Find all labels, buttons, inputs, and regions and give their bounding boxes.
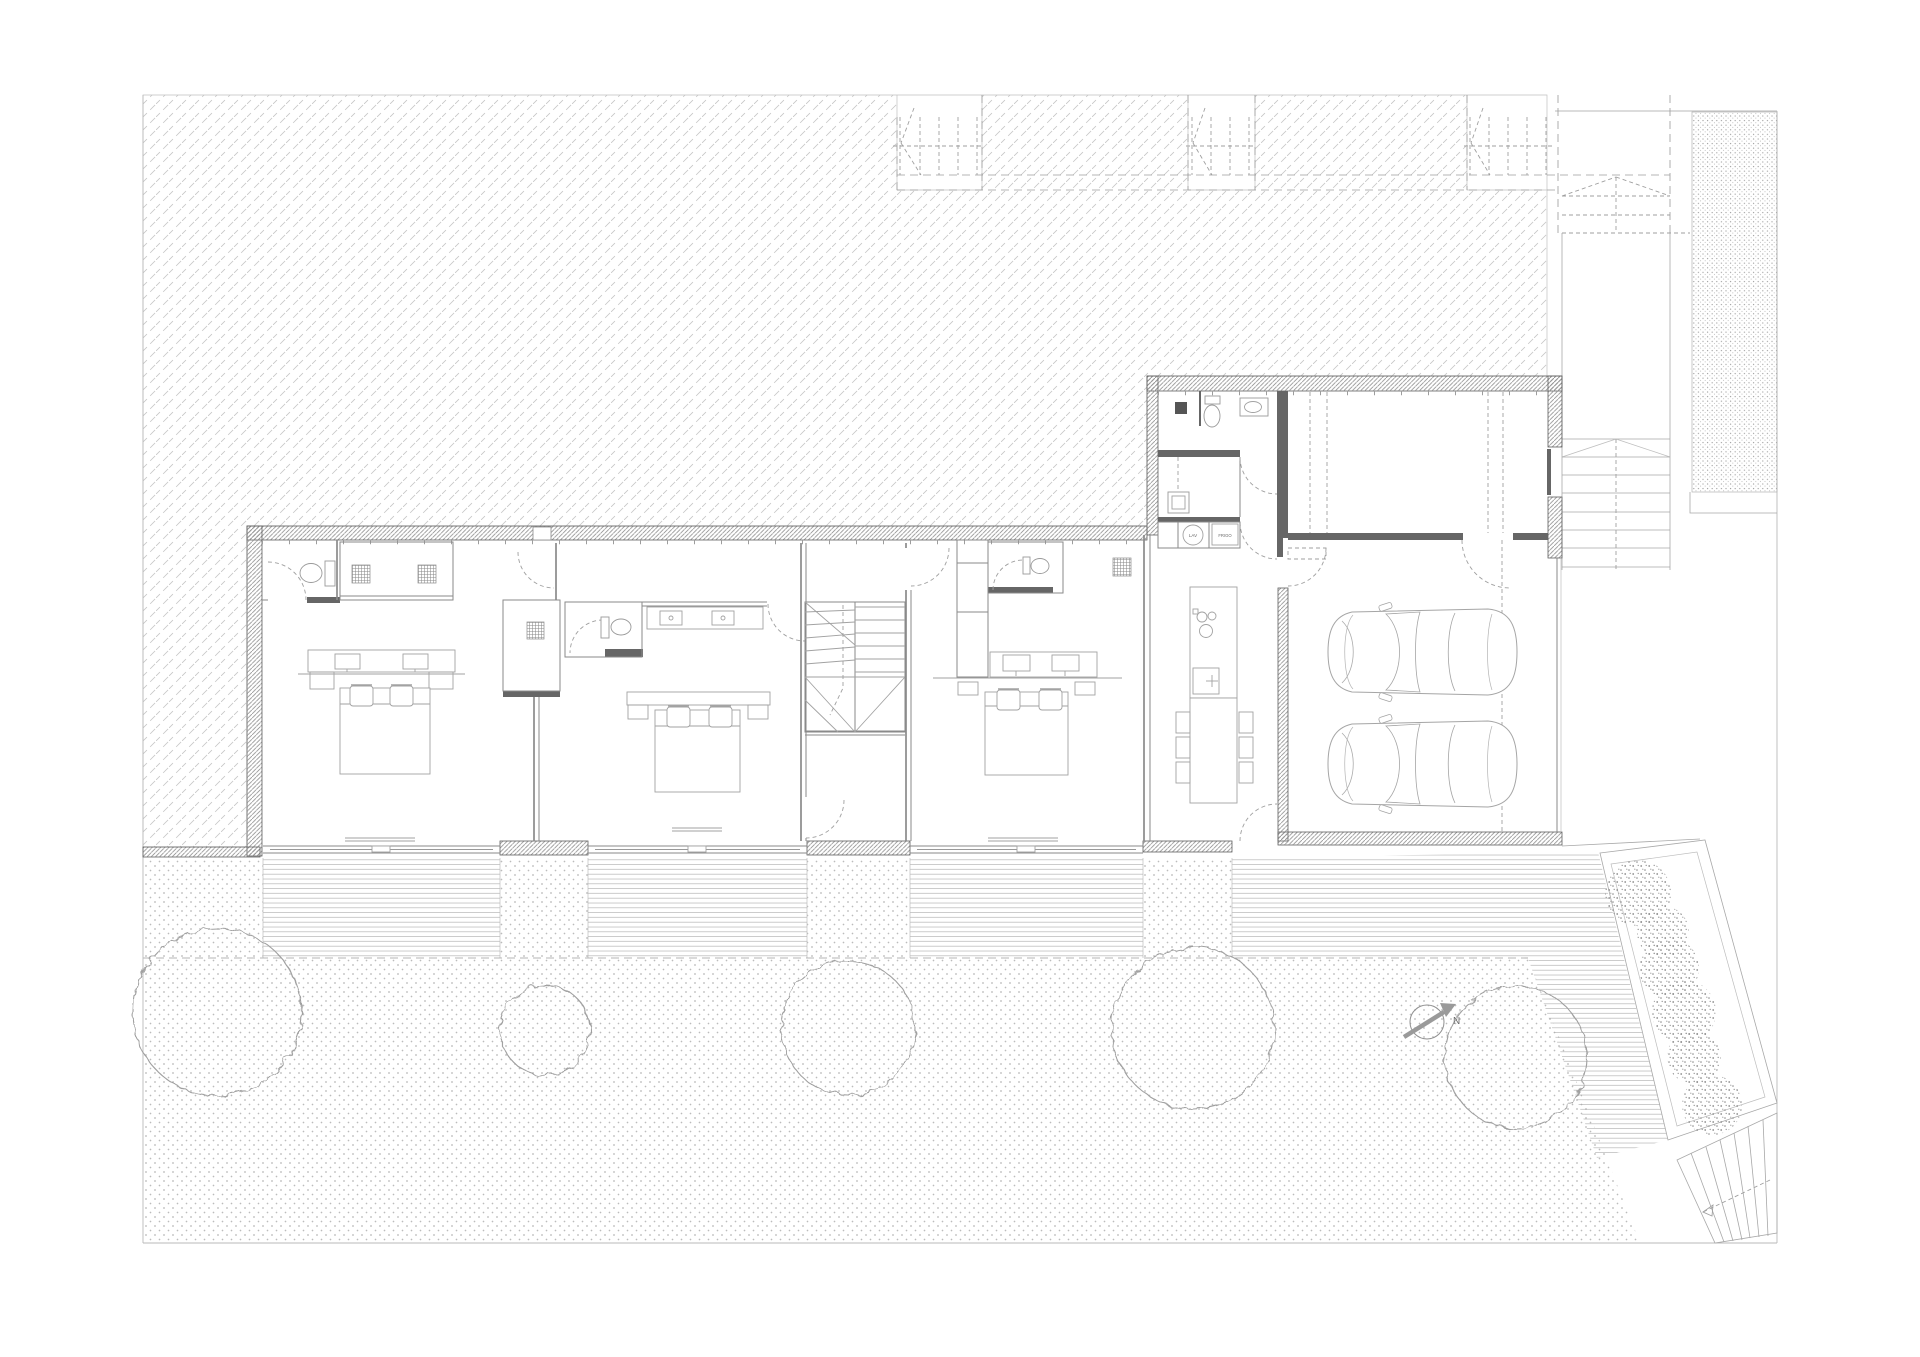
kitchen-dining xyxy=(1176,587,1253,803)
wall-west xyxy=(247,526,262,856)
door-swing-entry xyxy=(518,552,554,588)
door-swing-bed2 xyxy=(768,604,805,641)
garden-wall-west xyxy=(143,847,260,857)
planting-strip-east xyxy=(1692,112,1777,492)
door-swing-bath2 xyxy=(570,620,603,653)
door-swing-bath1 xyxy=(268,562,306,600)
wall-north-garage-wing xyxy=(1147,376,1562,391)
wall-garage-mid-a xyxy=(1288,533,1463,540)
floor-grille xyxy=(352,565,370,583)
laundry-fridge-alcove: LAV FRIGO xyxy=(1158,522,1240,548)
car-2 xyxy=(1328,714,1517,814)
bedroom-2-furniture xyxy=(627,692,770,792)
wall-utility-div1 xyxy=(1158,450,1240,457)
plan-sheet: N xyxy=(0,0,1920,1357)
bedroom-1-furniture xyxy=(298,650,465,774)
desk xyxy=(308,650,455,672)
main-stair xyxy=(805,602,905,732)
washer-label: LAV xyxy=(1189,533,1197,538)
rooflight-cluster-3 xyxy=(1464,108,1552,175)
dining-table xyxy=(1190,698,1237,803)
toilet-utility xyxy=(1204,396,1220,427)
toilet-bath2 xyxy=(601,617,631,638)
window-bedroom-1 xyxy=(263,846,500,853)
shrub-cluster xyxy=(1682,1075,1742,1135)
car-1 xyxy=(1328,602,1517,702)
toilet-bath1 xyxy=(300,561,335,586)
south-windows xyxy=(263,828,1143,853)
desk xyxy=(627,692,770,705)
water-heater xyxy=(1168,457,1189,513)
shower-drain xyxy=(1175,402,1187,414)
toilet-bath3 xyxy=(1023,557,1049,574)
door-swing-terrace xyxy=(1240,804,1277,841)
door-swing-utility2 xyxy=(1240,522,1277,559)
wall-garage-west xyxy=(1281,391,1288,538)
wall-south-seg2 xyxy=(807,841,910,855)
door-swing-understair xyxy=(806,800,844,838)
door-swing-bath3 xyxy=(993,560,1023,590)
window-bedroom-3 xyxy=(910,846,1143,853)
rooflight-cluster-1 xyxy=(893,108,983,175)
north-label: N xyxy=(1453,1016,1460,1027)
garden-stair-southeast xyxy=(1677,1113,1777,1243)
east-exterior-stair xyxy=(1562,177,1690,570)
desk xyxy=(990,652,1097,677)
rooflight-cluster-2 xyxy=(1186,108,1256,175)
east-door-leaf xyxy=(1547,449,1551,495)
floor-grille xyxy=(418,565,436,583)
wall-west-garage-wing xyxy=(1147,376,1158,535)
door-swing-bed3 xyxy=(911,548,949,586)
washbasin-utility xyxy=(1240,398,1268,416)
stair-direction-arrow xyxy=(1703,1205,1713,1216)
wall-garage-mid-b xyxy=(1513,533,1548,540)
carport-door-leaf xyxy=(1288,548,1326,559)
vanity-bed2 xyxy=(647,607,763,629)
deck-bedroom-3 xyxy=(910,858,1143,958)
utility-rooms: LAV FRIGO xyxy=(1158,391,1268,548)
wall-garage-east-lower xyxy=(1548,497,1562,558)
window-bedroom-2 xyxy=(588,846,807,853)
carport xyxy=(1328,602,1517,814)
bathroom-fixtures xyxy=(300,557,1049,638)
floor-plan-canvas: N xyxy=(0,0,1920,1357)
door-swing-carport xyxy=(1288,548,1326,586)
wall-garage-east-upper xyxy=(1548,376,1562,447)
deck-bedroom-1 xyxy=(263,858,500,958)
wall-south-seg3 xyxy=(1143,841,1232,852)
floor-grille xyxy=(1113,558,1131,576)
floor-grille xyxy=(527,622,544,639)
fridge-label: FRIGO xyxy=(1218,533,1232,538)
wall-utility-div2 xyxy=(1158,517,1240,522)
deck-bedroom-2 xyxy=(588,858,807,958)
wall-south-seg1 xyxy=(500,841,588,855)
wall-carport-south xyxy=(1278,832,1562,845)
door-swing-garage xyxy=(1462,540,1510,588)
wall-north-bedroom-wing xyxy=(247,526,1147,540)
entry-door-north xyxy=(533,527,551,540)
bedroom-3-furniture xyxy=(933,652,1122,775)
door-swing-utility1 xyxy=(1240,457,1277,494)
wall-carport-west xyxy=(1278,588,1288,841)
